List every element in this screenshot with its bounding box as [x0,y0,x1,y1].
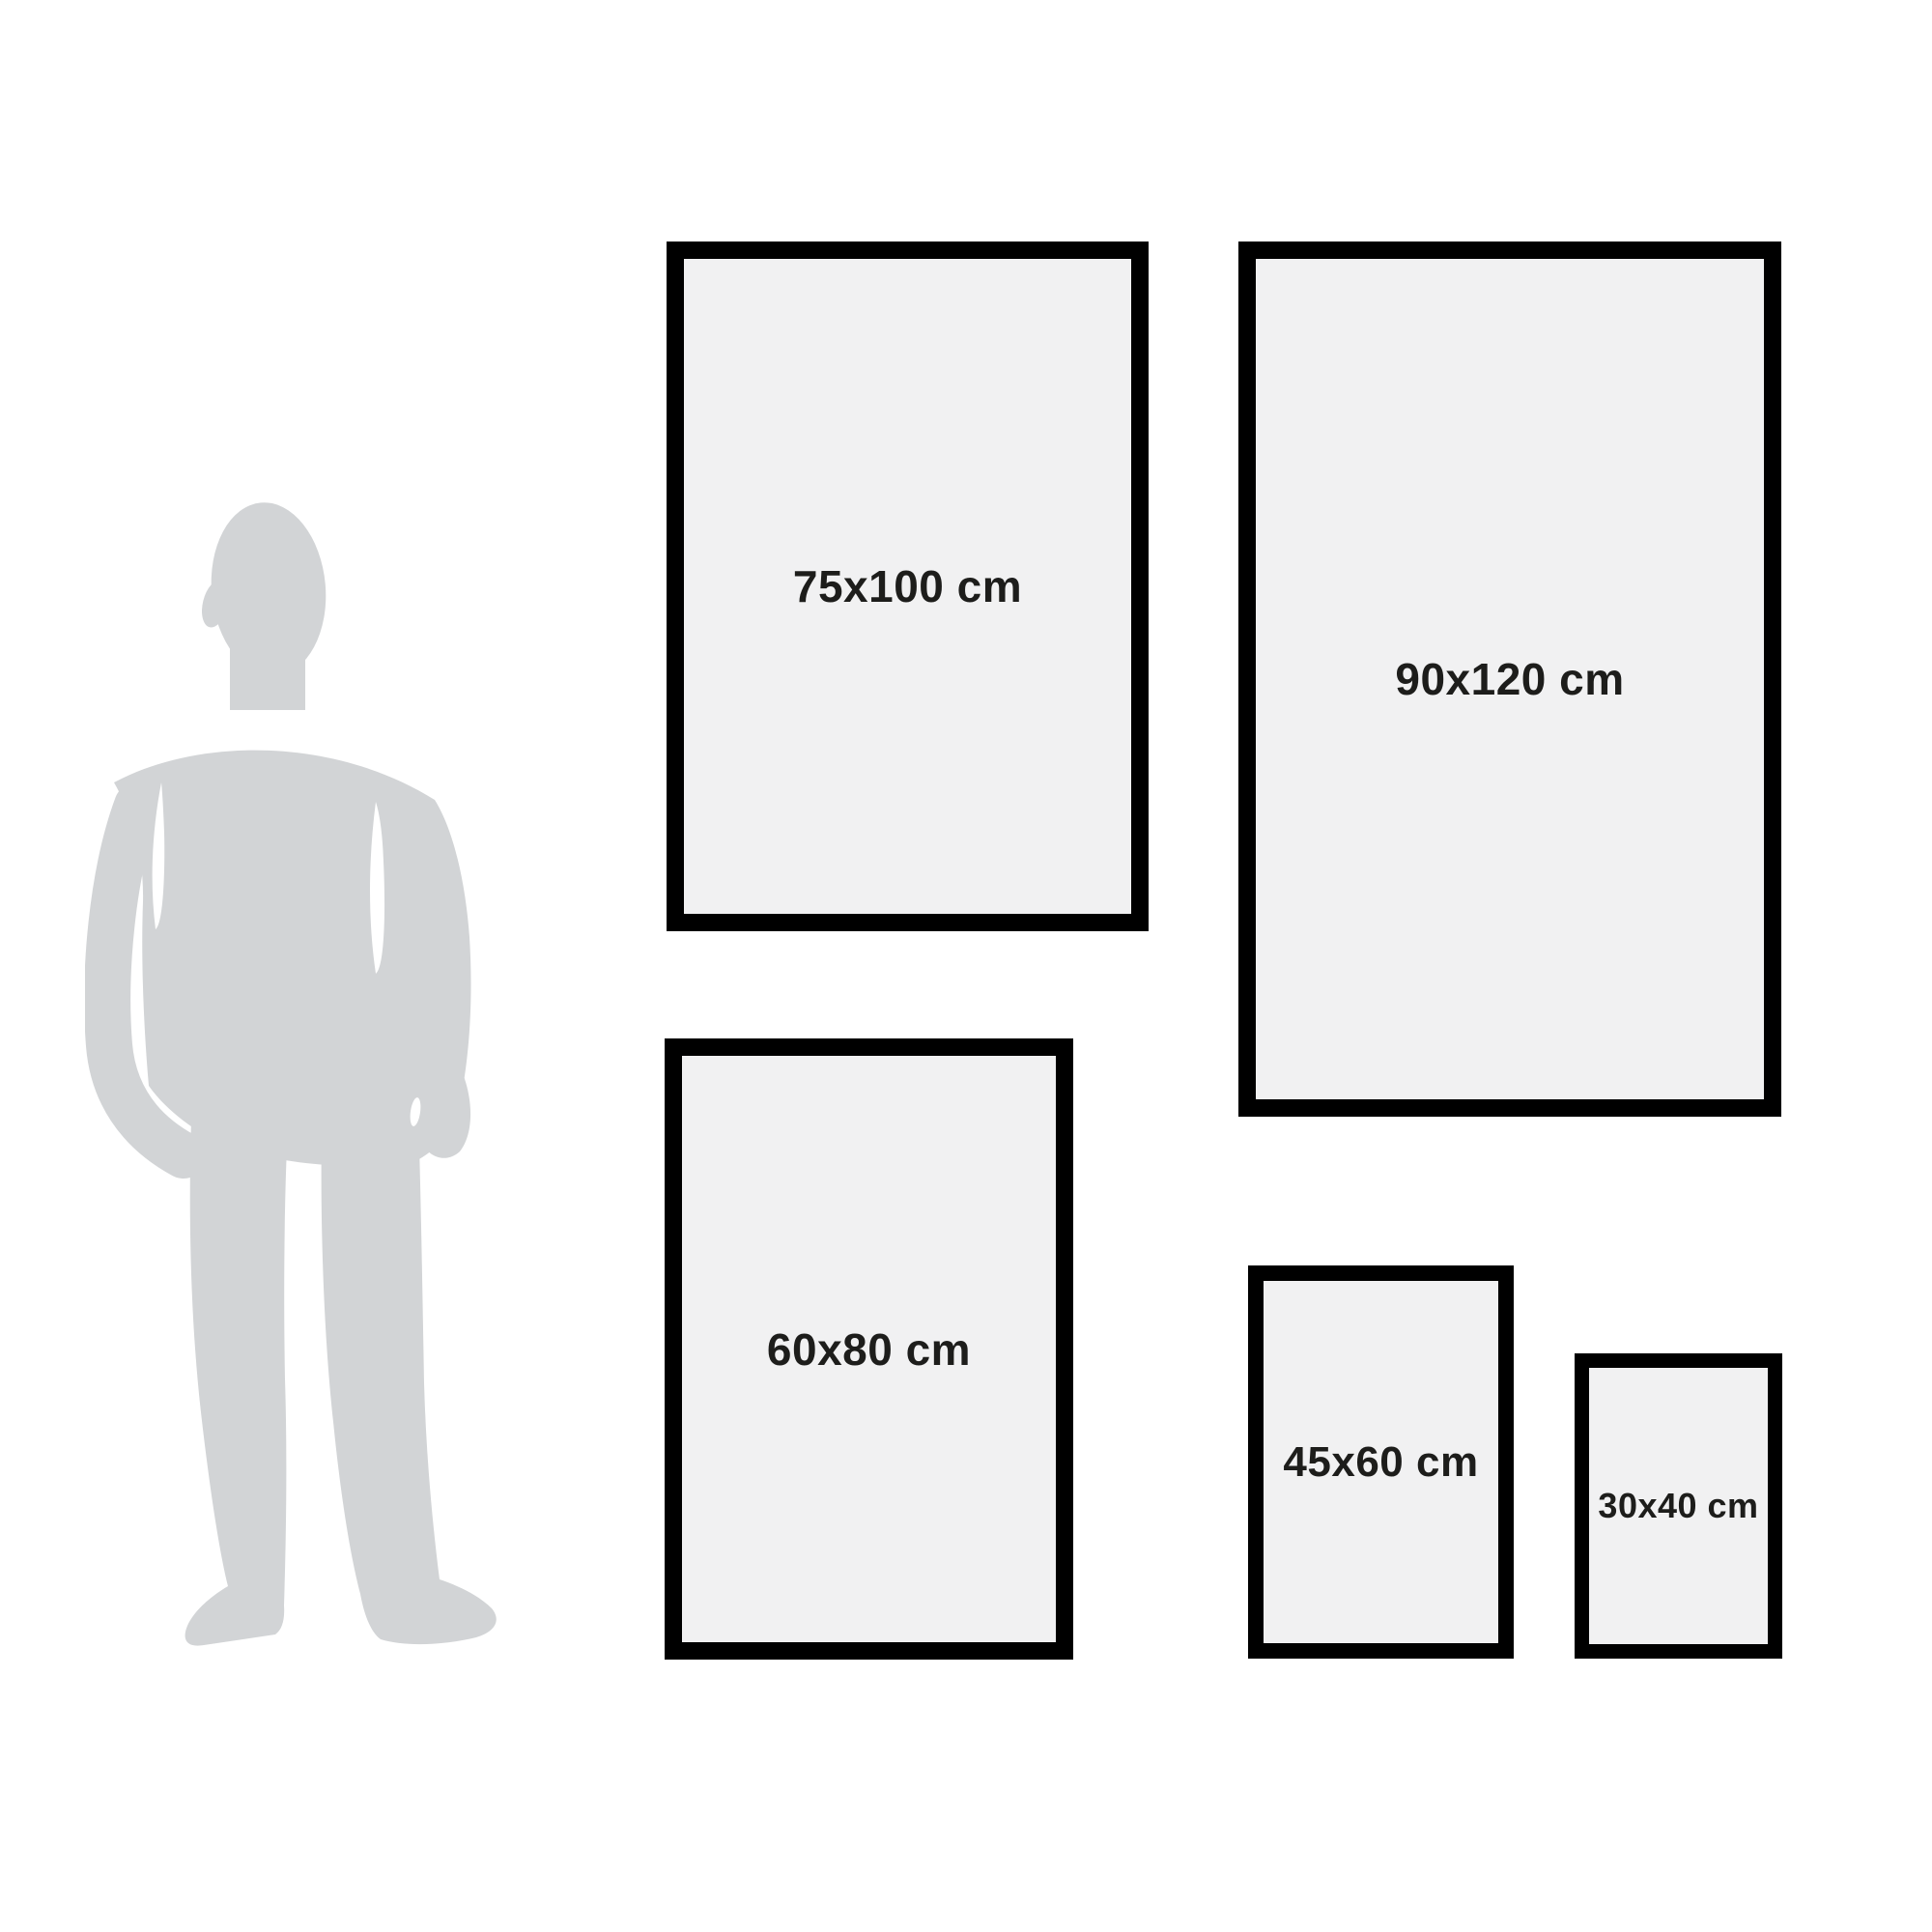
size-label: 60x80 cm [767,1323,971,1376]
size-label: 30x40 cm [1598,1486,1758,1526]
person-silhouette-icon [85,493,502,1654]
frame-90x120cm: 90x120 cm [1238,241,1781,1117]
size-label: 90x120 cm [1395,653,1624,705]
frame-45x60cm: 45x60 cm [1248,1265,1514,1659]
size-label: 75x100 cm [793,560,1022,612]
frame-60x80cm: 60x80 cm [665,1038,1073,1660]
size-label: 45x60 cm [1283,1438,1478,1487]
person-body [107,497,497,1645]
size-comparison-diagram: 75x100 cm 90x120 cm 60x80 cm 45x60 cm 30… [0,0,1932,1932]
frame-30x40cm: 30x40 cm [1575,1353,1782,1659]
frame-75x100cm: 75x100 cm [667,241,1149,931]
